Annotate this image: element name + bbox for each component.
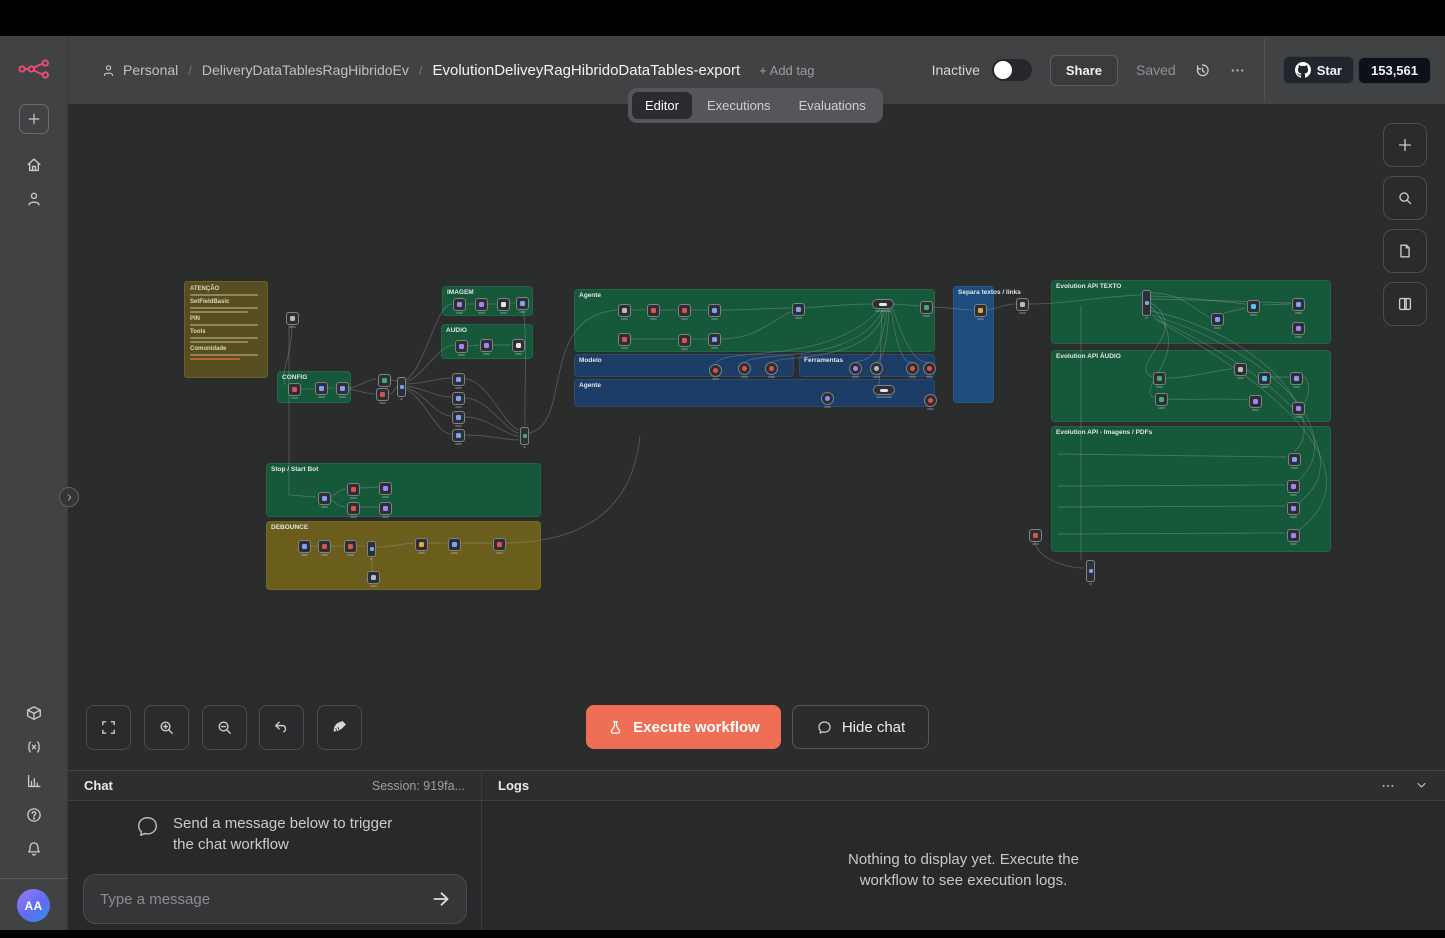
sticky-note-heading: Tools [190, 329, 262, 335]
tidy-up-button[interactable] [317, 705, 362, 750]
workflow-node[interactable] [318, 492, 331, 505]
chat-message-input[interactable] [84, 891, 416, 908]
undo-button[interactable] [259, 705, 304, 750]
browser-chrome-bar [0, 0, 1445, 36]
workflow-node[interactable] [1292, 322, 1305, 335]
workflow-node[interactable] [1292, 298, 1305, 311]
workflow-node[interactable] [480, 339, 493, 352]
n8n-logo[interactable] [18, 58, 50, 80]
undo-icon [272, 718, 291, 737]
hide-chat-label: Hide chat [842, 719, 905, 736]
ellipsis-icon [1229, 62, 1246, 79]
tab-executions[interactable]: Executions [694, 92, 784, 119]
workflow-node[interactable] [347, 483, 360, 496]
workflow-title[interactable]: EvolutionDeliveyRagHibridoDataTables-exp… [433, 62, 741, 79]
logs-empty-state: Nothing to display yet. Execute the work… [482, 849, 1445, 892]
broom-icon [330, 718, 349, 737]
flask-icon [607, 719, 624, 736]
sticky-note-heading: PIN [190, 316, 262, 322]
create-workflow-button[interactable] [19, 104, 49, 134]
workflow-node[interactable] [1292, 402, 1305, 415]
workflow-node[interactable] [367, 571, 380, 584]
execute-workflow-button[interactable]: Execute workflow [586, 705, 781, 749]
add-node-button[interactable] [1383, 123, 1427, 167]
person-icon [101, 63, 116, 78]
app-sidebar: AA [0, 36, 68, 930]
workflow-node[interactable] [1153, 372, 1166, 385]
bar-chart-icon [25, 772, 43, 790]
workflow-node[interactable] [708, 304, 721, 317]
workflow-node[interactable] [452, 411, 465, 424]
workflow-node[interactable] [870, 362, 883, 375]
sidebar-item-personal[interactable] [17, 182, 51, 216]
workflow-node[interactable] [298, 540, 311, 553]
workflow-node[interactable] [520, 427, 529, 445]
workflow-node[interactable] [455, 340, 468, 353]
sidebar-item-templates[interactable] [17, 696, 51, 730]
workflow-node[interactable] [288, 383, 301, 396]
send-icon [430, 888, 452, 910]
workflow-node[interactable] [379, 482, 392, 495]
workflow-node[interactable] [821, 392, 834, 405]
history-button[interactable] [1194, 62, 1211, 79]
layout-panel-button[interactable] [1383, 282, 1427, 326]
workflow-node[interactable] [647, 304, 660, 317]
bottom-panels: Chat Session: 919fa... Send a message be… [68, 770, 1445, 930]
workflow-node[interactable] [709, 364, 722, 377]
logs-panel-header: Logs [482, 771, 1445, 801]
workflow-node[interactable] [1029, 529, 1042, 542]
sidebar-item-insights[interactable] [17, 764, 51, 798]
workflow-node[interactable] [453, 298, 466, 311]
workflow-node[interactable] [379, 502, 392, 515]
sticky-note-heading: ATENÇÃO [190, 286, 262, 292]
workflow-node[interactable] [1247, 300, 1260, 313]
workflow-node[interactable] [678, 304, 691, 317]
tab-editor[interactable]: Editor [632, 92, 692, 119]
history-icon [1194, 62, 1211, 79]
send-message-button[interactable] [416, 888, 466, 910]
plus-icon [1396, 136, 1414, 154]
workflow-node[interactable] [1086, 560, 1095, 582]
workflow-node[interactable] [448, 538, 461, 551]
github-star-widget: Star 153,561 [1283, 56, 1431, 84]
workflow-node[interactable] [738, 362, 751, 375]
workflow-node[interactable] [452, 392, 465, 405]
workflow-node[interactable] [286, 312, 299, 325]
canvas-tool-rail [1383, 123, 1427, 326]
hide-chat-button[interactable]: Hide chat [792, 705, 929, 749]
workflow-node[interactable] [475, 298, 488, 311]
breadcrumb-separator: / [188, 63, 192, 78]
variables-icon [25, 738, 43, 756]
add-tag-button[interactable]: + Add tag [759, 63, 814, 78]
workflow-node[interactable] [497, 298, 510, 311]
workflow-canvas[interactable]: CONFIGIMAGEMAUDIOAgenteModeloFerramentas… [68, 36, 1445, 770]
fit-view-icon [99, 718, 118, 737]
workflow-node[interactable] [415, 538, 428, 551]
bottom-chrome-bar [0, 930, 1445, 938]
workflow-node[interactable] [708, 333, 721, 346]
workflow-node[interactable] [974, 304, 987, 317]
workflow-node[interactable] [920, 301, 933, 314]
help-icon [25, 806, 43, 824]
sticky-note-heading: Comunidade [190, 346, 262, 352]
columns-icon [1396, 295, 1414, 313]
user-icon [25, 190, 43, 208]
package-icon [25, 704, 43, 722]
chat-empty-state: Send a message below to trigger the chat… [134, 813, 392, 856]
sidebar-divider [0, 878, 68, 879]
more-options-button[interactable] [1229, 62, 1246, 79]
workflow-node[interactable] [315, 382, 328, 395]
workflow-node[interactable] [906, 362, 919, 375]
logs-panel: Logs Nothing to display yet. Execute the… [482, 771, 1445, 930]
home-icon [25, 156, 43, 174]
workflow-node[interactable] [1287, 480, 1300, 493]
workflow-node[interactable] [347, 502, 360, 515]
ellipsis-icon[interactable] [1380, 778, 1396, 794]
workflow-node[interactable] [1142, 290, 1151, 316]
zoom-out-icon [215, 718, 234, 737]
chat-panel-header: Chat Session: 919fa... [68, 771, 481, 801]
sidebar-item-home[interactable] [17, 148, 51, 182]
share-button[interactable]: Share [1050, 55, 1118, 86]
workflow-node[interactable] [1249, 395, 1262, 408]
sidebar-expand-button[interactable] [59, 487, 79, 507]
chat-session-id[interactable]: Session: 919fa... [372, 779, 465, 793]
breadcrumb-separator: / [419, 63, 423, 78]
chat-title: Chat [84, 778, 113, 793]
workflow-node[interactable] [493, 538, 506, 551]
tab-evaluations[interactable]: Evaluations [786, 92, 879, 119]
avatar[interactable]: AA [17, 889, 50, 922]
file-icon [1396, 242, 1414, 260]
github-icon [1295, 62, 1311, 78]
workflow-node[interactable] [1234, 363, 1247, 376]
workflow-node[interactable] [1211, 313, 1224, 326]
chevron-down-icon[interactable] [1414, 778, 1429, 793]
sticky-note-heading: SetFieldBasic [190, 299, 262, 305]
zoom-out-button[interactable] [202, 705, 247, 750]
workflow-node[interactable] [336, 382, 349, 395]
sidebar-item-help[interactable] [17, 798, 51, 832]
workflow-node[interactable] [512, 339, 525, 352]
header-divider [1264, 38, 1265, 102]
active-status-label: Inactive [932, 62, 980, 78]
workflow-node[interactable] [618, 333, 631, 346]
bell-icon [25, 840, 43, 858]
workflow-node[interactable] [872, 299, 894, 309]
workflow-node[interactable] [452, 373, 465, 386]
workflow-node[interactable] [516, 297, 529, 310]
logs-title: Logs [498, 778, 529, 793]
breadcrumb: Personal / DeliveryDataTablesRagHibridoE… [101, 62, 814, 79]
chat-input-container [83, 874, 467, 924]
zoom-to-fit-button[interactable] [86, 705, 131, 750]
workflow-node[interactable] [452, 429, 465, 442]
workflow-node[interactable] [792, 303, 805, 316]
search-icon [1396, 189, 1414, 207]
workflow-node[interactable] [1155, 393, 1168, 406]
workflow-node[interactable] [618, 304, 631, 317]
active-toggle[interactable] [992, 59, 1032, 81]
plus-icon [26, 111, 42, 127]
workflow-node[interactable] [1288, 453, 1301, 466]
workflow-node[interactable] [1287, 529, 1300, 542]
github-star-button[interactable]: Star [1283, 56, 1354, 84]
breadcrumb-personal[interactable]: Personal [101, 62, 178, 78]
search-nodes-button[interactable] [1383, 176, 1427, 220]
chat-bubble-icon [134, 813, 161, 840]
workflow-node[interactable] [849, 362, 862, 375]
workflow-node[interactable] [765, 362, 778, 375]
workflow-node[interactable] [924, 394, 937, 407]
workflow-node[interactable] [376, 388, 389, 401]
toggle-knob [994, 61, 1012, 79]
workflow-node[interactable] [318, 540, 331, 553]
workflow-node[interactable] [678, 334, 691, 347]
workflow-node[interactable] [378, 374, 391, 387]
chat-empty-text: Send a message below to trigger the chat… [173, 813, 392, 856]
workflow-edges [68, 36, 1445, 770]
breadcrumb-project[interactable]: DeliveryDataTablesRagHibridoEv [202, 62, 409, 78]
workflow-node[interactable] [1016, 298, 1029, 311]
github-star-count[interactable]: 153,561 [1358, 57, 1431, 84]
zoom-in-button[interactable] [144, 705, 189, 750]
workflow-node[interactable] [344, 540, 357, 553]
workflow-node[interactable] [923, 362, 936, 375]
chat-panel: Chat Session: 919fa... Send a message be… [68, 771, 482, 930]
sticky-note[interactable]: ATENÇÃOSetFieldBasicPINToolsComunidade [184, 281, 268, 378]
sidebar-item-variables[interactable] [17, 730, 51, 764]
zoom-in-icon [157, 718, 176, 737]
chevron-right-icon [65, 493, 74, 502]
add-sticky-note-button[interactable] [1383, 229, 1427, 273]
workflow-node[interactable] [1258, 372, 1271, 385]
execute-workflow-label: Execute workflow [633, 719, 760, 736]
workflow-node[interactable] [397, 377, 406, 397]
view-tabs: Editor Executions Evaluations [628, 88, 883, 123]
workflow-node[interactable] [873, 385, 895, 395]
workflow-node[interactable] [1290, 372, 1303, 385]
saved-status: Saved [1136, 62, 1176, 78]
workflow-node[interactable] [1287, 502, 1300, 515]
sidebar-item-notifications[interactable] [17, 832, 51, 866]
chat-bubble-icon [816, 719, 833, 736]
workflow-node[interactable] [367, 541, 376, 557]
